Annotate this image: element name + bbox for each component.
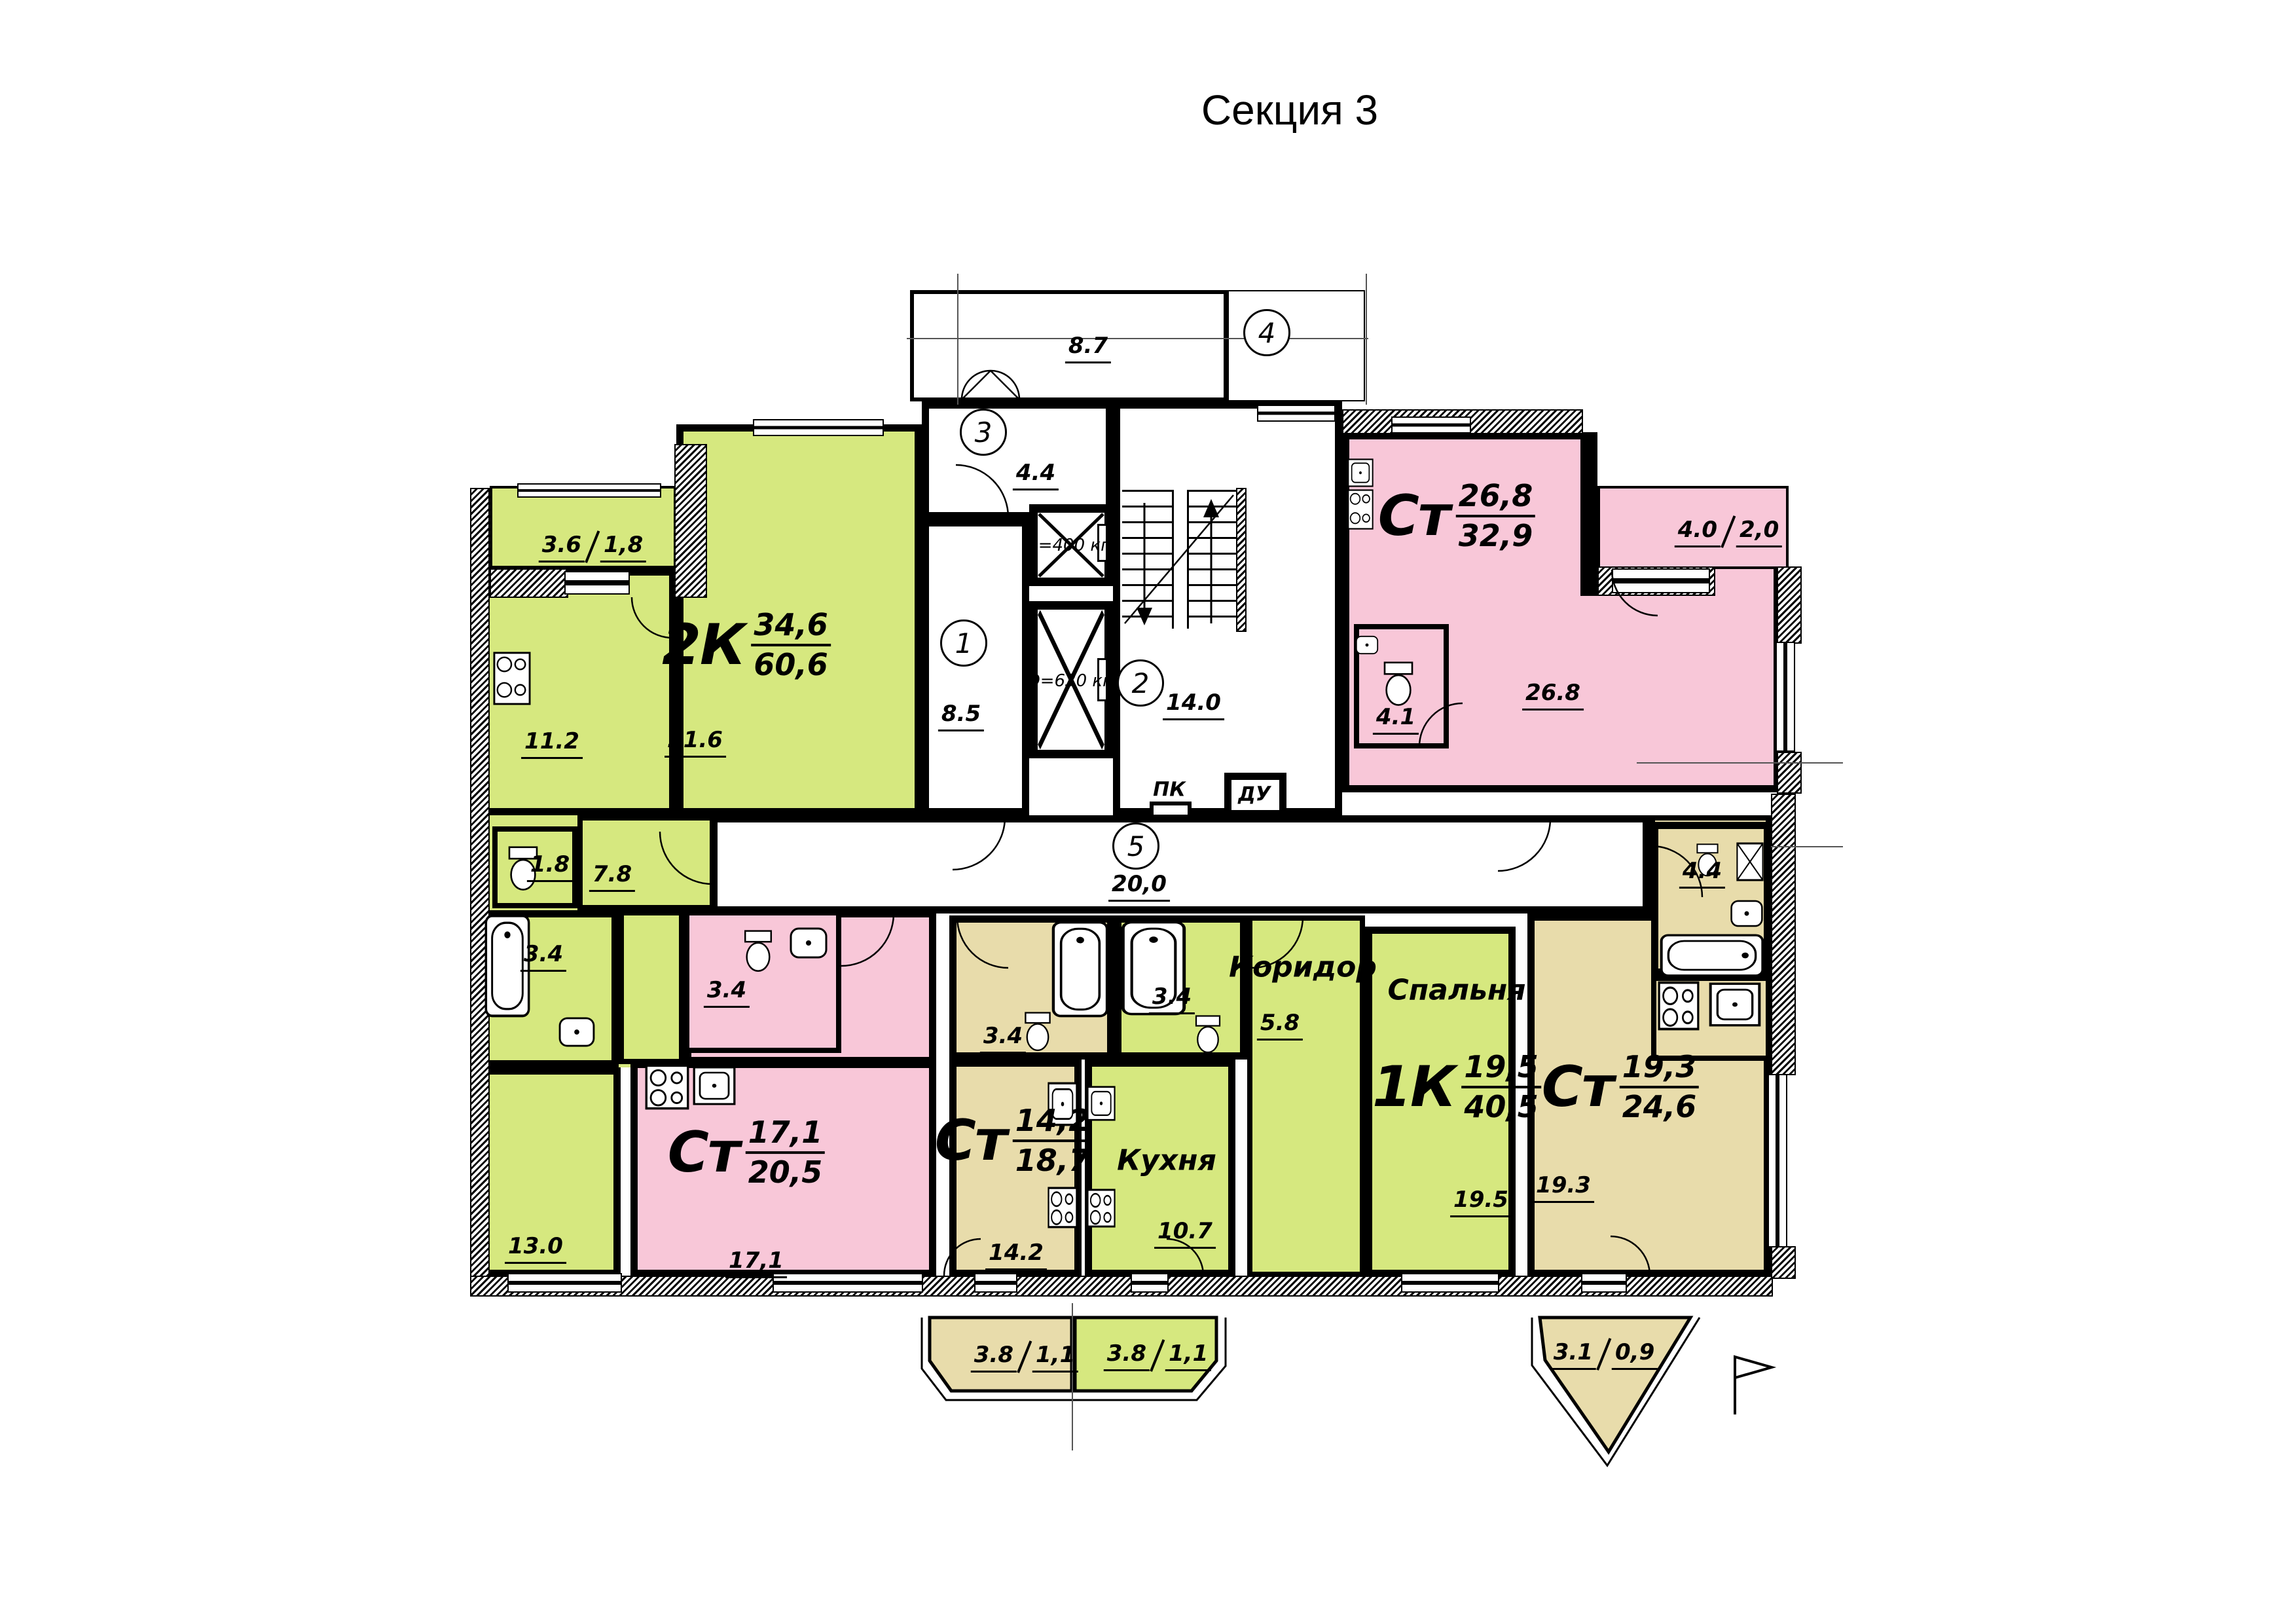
stair-wall bbox=[1236, 488, 1247, 632]
balcony-studio19-label: 3.10,9 bbox=[1550, 1337, 1658, 1371]
studio26-bath-area: 4.1 bbox=[1373, 704, 1419, 730]
kitchen-1k-name: Кухня bbox=[1117, 1144, 1216, 1177]
studio19-bath-area: 4.4 bbox=[1679, 858, 1725, 884]
corridor-1k-name: Коридор bbox=[1229, 951, 1377, 984]
hall-2k-area: 7.8 bbox=[589, 861, 635, 887]
page-title: Секция 3 bbox=[1201, 86, 1378, 134]
balcony-door-window bbox=[1131, 1273, 1169, 1293]
studio19-label: Ст 19,324,6 bbox=[1542, 1050, 1699, 1124]
washbasin-icon bbox=[556, 1016, 597, 1048]
bathtub-icon bbox=[1660, 934, 1764, 977]
position-circle-3: 3 bbox=[960, 409, 1007, 456]
living-2k-area: 21.6 bbox=[665, 727, 726, 753]
stair-stringer bbox=[1172, 490, 1189, 629]
studio26-room-area: 26.8 bbox=[1522, 680, 1584, 706]
fire-cabinet-label: ПК bbox=[1153, 779, 1186, 802]
corridor-1k-area: 5.8 bbox=[1257, 1010, 1303, 1036]
window bbox=[1401, 1273, 1499, 1293]
exterior-wall-right bbox=[1771, 794, 1796, 1075]
toilet-icon bbox=[1379, 661, 1418, 707]
studio17-room-area: 17,1 bbox=[725, 1247, 787, 1274]
stove-icon bbox=[493, 652, 531, 705]
window bbox=[1581, 1273, 1627, 1293]
window bbox=[753, 419, 884, 436]
balcony-window bbox=[564, 571, 630, 595]
studio19-room-area: 19.3 bbox=[1533, 1172, 1594, 1198]
window bbox=[1776, 642, 1795, 752]
window bbox=[507, 1273, 622, 1293]
bedroom-1k-name: Спальня bbox=[1387, 974, 1525, 1007]
studio14-label: Ст 14,218,7 bbox=[935, 1103, 1092, 1178]
fire-cabinet-box bbox=[1150, 802, 1192, 819]
window bbox=[773, 1273, 923, 1293]
stair-window bbox=[1257, 405, 1336, 422]
washbasin-icon bbox=[1730, 895, 1764, 932]
axis-line bbox=[1366, 274, 1367, 405]
porch-area-label: 8.7 bbox=[1065, 333, 1111, 359]
room-2k-area: 13.0 bbox=[505, 1233, 566, 1259]
sink-icon bbox=[1347, 458, 1374, 487]
exterior-wall-right bbox=[1777, 566, 1802, 644]
washbasin-icon bbox=[789, 927, 828, 959]
washbasin-icon bbox=[1355, 627, 1379, 663]
apartment-1k-bath-area: 3.4 bbox=[1149, 984, 1195, 1010]
axis-line bbox=[1637, 762, 1843, 764]
toilet-icon bbox=[740, 930, 776, 973]
corridor-area-label: 20,0 bbox=[1108, 871, 1170, 897]
wall-segment bbox=[1580, 432, 1597, 596]
balcony-studio14-label: 3.81,1 bbox=[971, 1340, 1078, 1374]
balcony-studio26-label: 4.02,0 bbox=[1675, 515, 1782, 549]
vestibule-area-label: 4.4 bbox=[1013, 460, 1059, 486]
sink-icon bbox=[1709, 982, 1761, 1027]
axis-line bbox=[957, 274, 958, 405]
lobby-area-label: 8.5 bbox=[938, 701, 984, 727]
balcony-door-window bbox=[974, 1273, 1017, 1293]
exterior-wall-bottom bbox=[470, 1276, 1773, 1297]
window bbox=[1768, 1074, 1787, 1247]
position-circle-2: 2 bbox=[1117, 659, 1164, 707]
bedroom-1k-area: 19.5 bbox=[1450, 1187, 1512, 1213]
toilet-icon bbox=[1192, 1015, 1224, 1054]
balcony-2k-label: 3.61,8 bbox=[539, 530, 646, 564]
window bbox=[1391, 416, 1471, 434]
position-circle-1: 1 bbox=[940, 619, 987, 667]
studio26-label: Ст 26,832,9 bbox=[1378, 479, 1535, 553]
axis-line bbox=[1771, 846, 1843, 847]
wc-2k-area: 1.8 bbox=[527, 851, 573, 877]
sink-icon bbox=[693, 1066, 736, 1105]
floor-plan: Секция 3 bbox=[0, 0, 2296, 1624]
studio17-bath-area: 3.4 bbox=[704, 977, 750, 1003]
stove-icon bbox=[645, 1064, 689, 1110]
kitchen-2k-area: 11.2 bbox=[521, 728, 583, 754]
elevator-large-label: Q=630 кг bbox=[1027, 671, 1112, 691]
section-mark-flag bbox=[1735, 1357, 1772, 1378]
elevator-lobby bbox=[922, 519, 1029, 815]
studio14-bath-area: 3.4 bbox=[980, 1023, 1026, 1049]
window bbox=[517, 483, 661, 498]
studio17-label: Ст 17,120,5 bbox=[668, 1115, 825, 1190]
closet-2k bbox=[619, 910, 684, 1064]
common-corridor bbox=[710, 815, 1650, 913]
stove-icon bbox=[1658, 981, 1700, 1031]
studio14-room-area: 14.2 bbox=[985, 1240, 1047, 1266]
toilet-icon bbox=[1021, 1012, 1054, 1052]
vent-shaft-pillar bbox=[674, 444, 707, 598]
stove-icon bbox=[1048, 1187, 1078, 1228]
kitchen-1k-area: 10.7 bbox=[1154, 1218, 1216, 1244]
elevator-small-label: Q=400 кг bbox=[1025, 536, 1110, 555]
water-heater-icon bbox=[1736, 842, 1764, 881]
apartment-2k-label: 2К 34,660,6 bbox=[662, 608, 831, 682]
axis-line bbox=[1072, 1303, 1073, 1450]
position-circle-5: 5 bbox=[1112, 822, 1159, 870]
exterior-wall-left bbox=[470, 488, 490, 1297]
exterior-notch bbox=[1591, 411, 1787, 487]
balcony-1k-label: 3.81,1 bbox=[1104, 1338, 1211, 1373]
exterior-wall-right bbox=[1777, 752, 1802, 794]
smoke-exhaust-label: ДУ bbox=[1238, 783, 1271, 806]
exterior-wall-right bbox=[1771, 1246, 1796, 1279]
bathtub-icon bbox=[1051, 921, 1109, 1018]
stairs-area-label: 14.0 bbox=[1163, 690, 1224, 716]
stove-icon bbox=[1087, 1189, 1116, 1228]
balcony-window bbox=[1612, 568, 1710, 593]
stove-icon bbox=[1347, 489, 1374, 530]
bath-2k-area: 3.4 bbox=[520, 941, 566, 967]
axis-line bbox=[907, 338, 1368, 339]
balcony-partition-wall bbox=[490, 568, 568, 598]
position-circle-4: 4 bbox=[1243, 309, 1290, 356]
apartment-1k-label: 1К 19,540,5 bbox=[1372, 1050, 1541, 1124]
